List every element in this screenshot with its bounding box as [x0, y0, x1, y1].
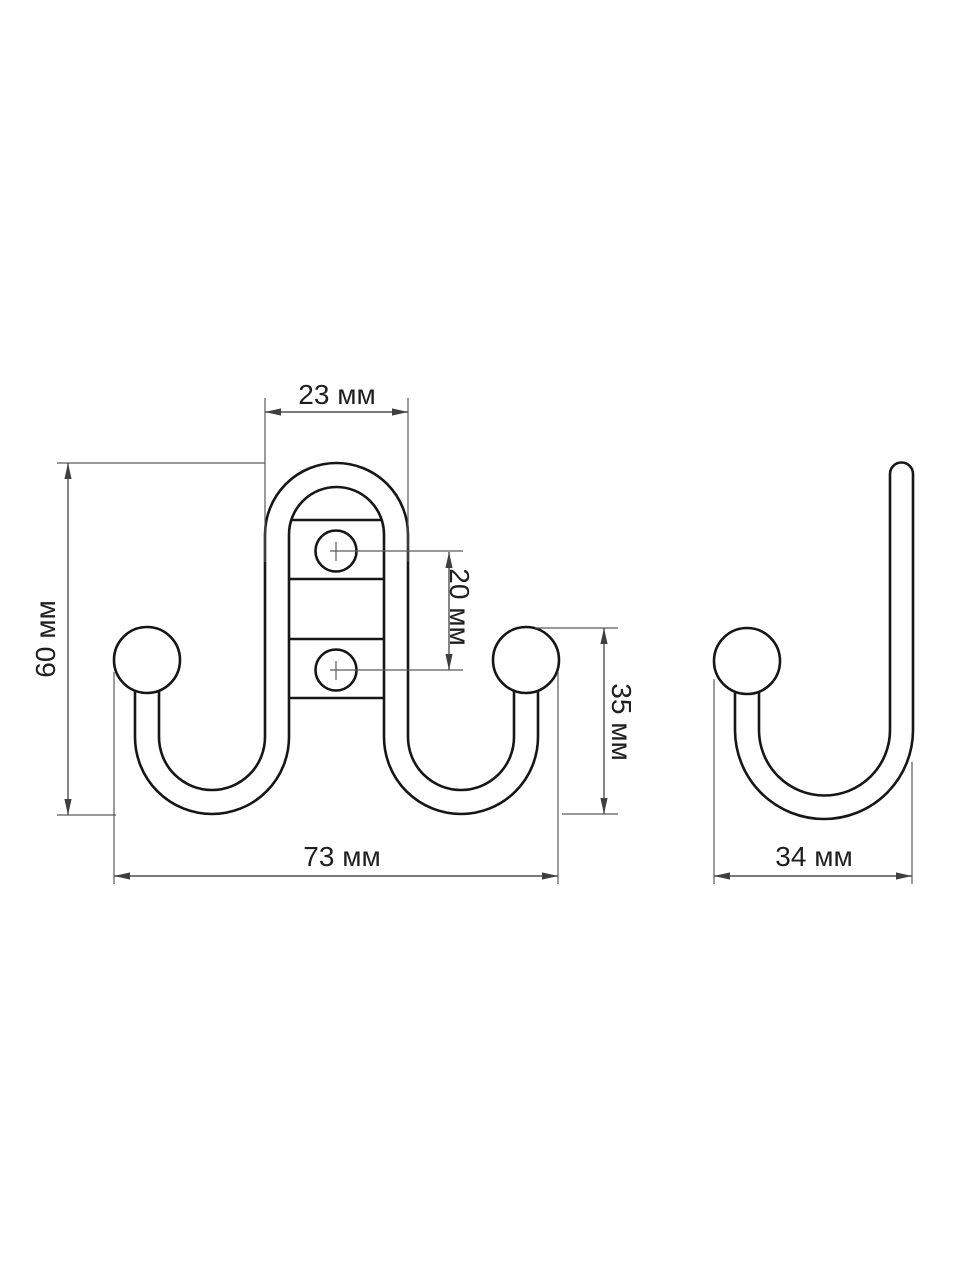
dim-label-height: 60 мм: [30, 600, 61, 677]
front-left-arm-inner-contour: [159, 535, 265, 791]
dim-label-total-width: 73 мм: [303, 841, 380, 872]
front-outer-arch: [265, 463, 408, 535]
dimension-height: 60 мм: [30, 463, 265, 815]
dim-label-top-width: 23 мм: [298, 379, 375, 410]
front-view: 23 мм 60 мм 20 мм: [30, 379, 637, 884]
front-left-ball-tip: [114, 627, 180, 693]
dim-label-hook-height: 35 мм: [606, 683, 637, 760]
side-outer-contour: [735, 474, 913, 819]
dim-label-depth: 34 мм: [775, 841, 852, 872]
side-inner-contour: [759, 474, 890, 796]
front-right-ball-tip: [493, 627, 559, 693]
front-inner-arch: [289, 487, 384, 534]
technical-drawing-page: 23 мм 60 мм 20 мм: [0, 0, 960, 1280]
dimension-hook-height: 35 мм: [535, 628, 637, 814]
dim-label-hole-spacing: 20 мм: [444, 568, 475, 645]
dimension-total-width: 73 мм: [114, 672, 558, 884]
double-hook-technical-drawing: 23 мм 60 мм 20 мм: [0, 0, 960, 1280]
dimension-top-width: 23 мм: [265, 379, 408, 562]
dimension-depth: 34 мм: [714, 679, 912, 884]
side-ball-tip: [714, 628, 780, 694]
side-view: 34 мм: [714, 463, 913, 885]
side-stem-cap: [890, 463, 913, 475]
